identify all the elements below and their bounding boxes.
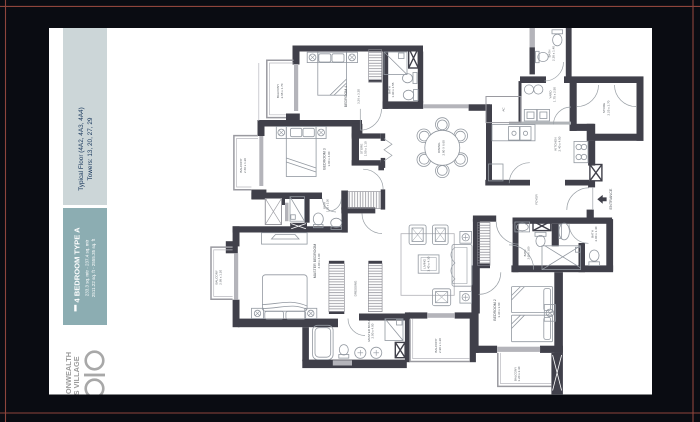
svg-text:2.60 x 1.20: 2.60 x 1.20 — [243, 158, 247, 173]
svg-text:2.05 x 1.60: 2.05 x 1.60 — [527, 246, 531, 259]
svg-text:DINING: DINING — [437, 142, 441, 153]
svg-text:ENTRANCE: ENTRANCE — [609, 188, 613, 209]
svg-text:2.28 x 1.40: 2.28 x 1.40 — [552, 46, 556, 61]
svg-text:1.50 x 1.10: 1.50 x 1.10 — [364, 141, 368, 156]
svg-text:3.00 x 4.00: 3.00 x 4.00 — [327, 151, 331, 166]
svg-text:2.80 X 6.60: 2.80 X 6.60 — [441, 140, 445, 156]
svg-text:Typical Floor (4A2, 4A3, 4A4): Typical Floor (4A2, 4A3, 4A4) — [78, 107, 85, 190]
svg-text:3.40 x 4.30: 3.40 x 4.30 — [427, 256, 431, 271]
svg-text:2511.22 sq. ft - 2555.35 sq. f: 2511.22 sq. ft - 2555.35 sq. ft — [91, 238, 96, 297]
svg-text:1.20 x 2.30: 1.20 x 2.30 — [517, 366, 521, 381]
svg-text:BEDROOM 3: BEDROOM 3 — [322, 148, 326, 170]
svg-text:1.75 x 2.50: 1.75 x 2.50 — [553, 87, 557, 102]
svg-text:2.90 x 1.20: 2.90 x 1.20 — [438, 338, 442, 353]
svg-text:BEDROOM 4: BEDROOM 4 — [344, 86, 348, 108]
svg-text:2.25 x 2.70: 2.25 x 2.70 — [606, 100, 610, 115]
svg-text:2.68 x 1.70: 2.68 x 1.70 — [280, 83, 284, 98]
svg-text:FOYER: FOYER — [534, 194, 538, 205]
svg-text:2.00 x 1.40: 2.00 x 1.40 — [594, 226, 598, 241]
svg-text:4 BEDROOM TYPE A: 4 BEDROOM TYPE A — [72, 227, 81, 303]
svg-text:2.68 x 1.20: 2.68 x 1.20 — [219, 270, 223, 285]
svg-text:4.00 x 4.00: 4.00 x 4.00 — [317, 253, 321, 268]
svg-text:DRESSING: DRESSING — [353, 280, 357, 296]
svg-text:233.3 sq. mtr - 237.4 sq. mtr: 233.3 sq. mtr - 237.4 sq. mtr — [84, 239, 89, 296]
svg-text:BATH: BATH — [523, 250, 527, 257]
svg-text:Towers: 13, 20, 27, 29: Towers: 13, 20, 27, 29 — [87, 117, 94, 180]
svg-text:3.26 x 3.20: 3.26 x 3.20 — [357, 89, 361, 104]
svg-text:3.30 x 3.60: 3.30 x 3.60 — [497, 302, 501, 317]
svg-text:1.55 x 2.50: 1.55 x 2.50 — [326, 199, 330, 212]
svg-text:2.40 x 4.50: 2.40 x 4.50 — [558, 136, 562, 151]
svg-text:1.90 x 1.55: 1.90 x 1.55 — [391, 82, 395, 97]
svg-text:2.00 x 4.00: 2.00 x 4.00 — [371, 323, 375, 338]
